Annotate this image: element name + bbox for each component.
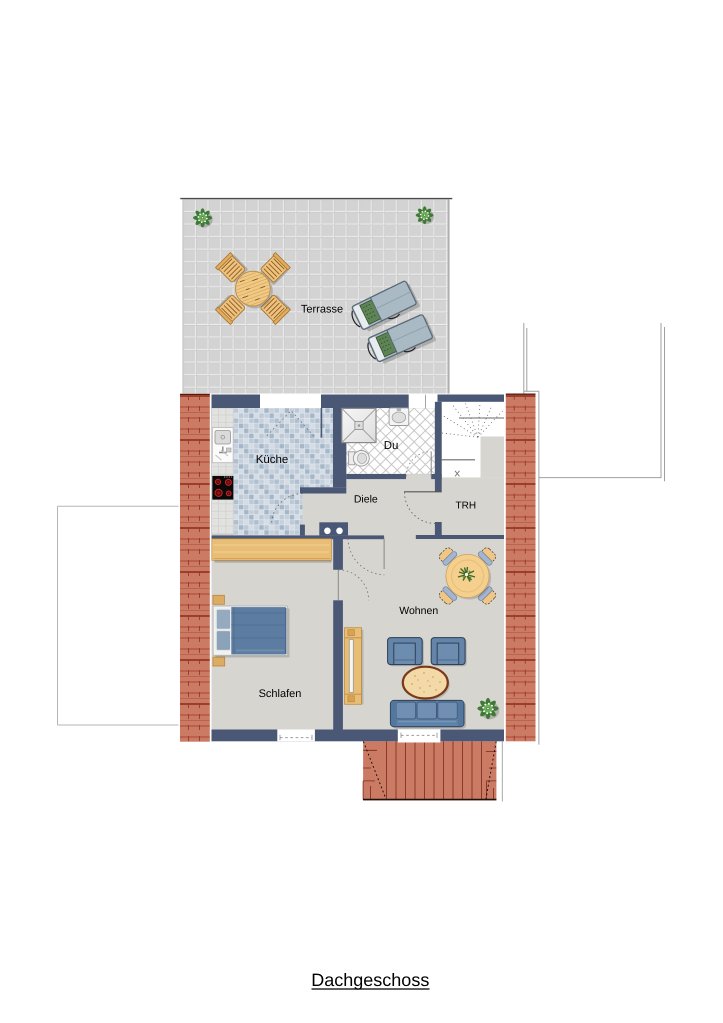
svg-text:Diele: Diele: [354, 493, 378, 505]
svg-text:Du: Du: [384, 440, 399, 452]
svg-text:Dachgeschoss: Dachgeschoss: [311, 970, 429, 990]
svg-text:TRH: TRH: [456, 500, 477, 511]
svg-text:Schlafen: Schlafen: [259, 688, 302, 700]
svg-text:Terrasse: Terrasse: [301, 303, 343, 315]
svg-text:Küche: Küche: [256, 454, 289, 466]
svg-text:Wohnen: Wohnen: [399, 605, 438, 617]
